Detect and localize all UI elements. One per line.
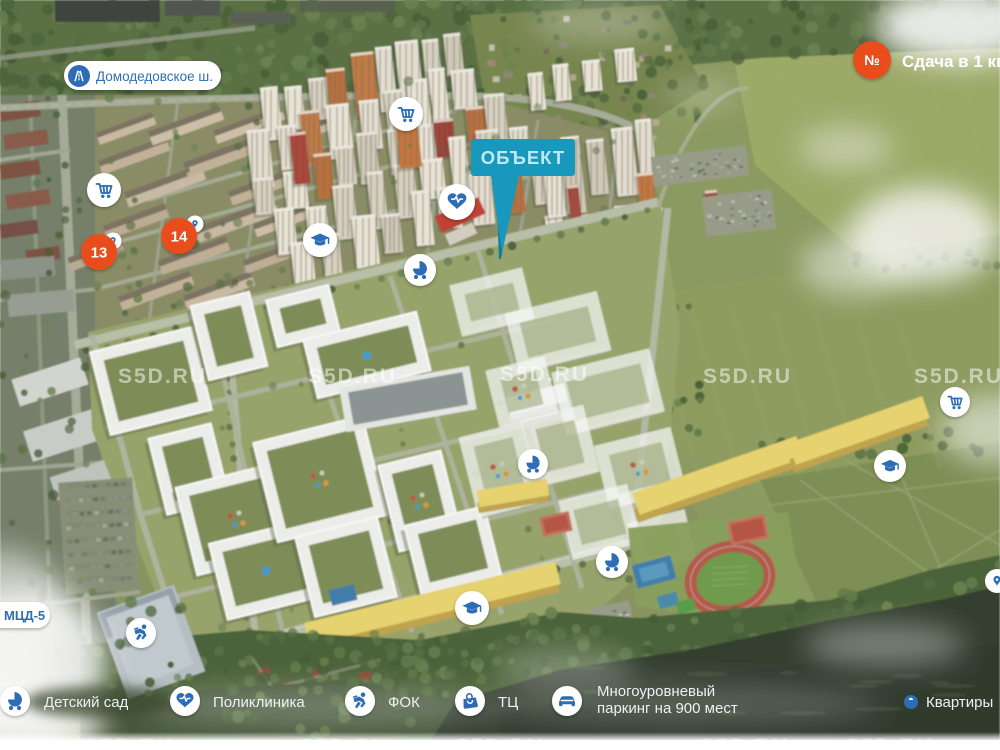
svg-text:S5D.RU: S5D.RU [700, 735, 789, 750]
svg-text:S5D.RU: S5D.RU [300, 735, 389, 750]
svg-text:S5D.RU: S5D.RU [85, 735, 174, 750]
svg-text:S5D.RU: S5D.RU [118, 365, 207, 388]
svg-text:№: № [864, 52, 880, 68]
svg-text:Сдача в 1 кв: Сдача в 1 кв [902, 52, 1000, 71]
svg-text:Детский сад: Детский сад [44, 694, 129, 711]
svg-text:ТЦ: ТЦ [498, 694, 518, 711]
svg-text:S5D.RU: S5D.RU [455, 735, 544, 750]
svg-text:ОБЪЕКТ: ОБЪЕКТ [481, 147, 565, 168]
svg-text:ФОК: ФОК [388, 694, 420, 711]
svg-text:Квартиры: Квартиры [926, 694, 993, 711]
svg-text:14: 14 [171, 228, 188, 245]
svg-text:13: 13 [91, 244, 108, 261]
svg-text:S5D.RU: S5D.RU [500, 363, 589, 386]
svg-text:Домодедовское ш.: Домодедовское ш. [96, 69, 213, 84]
svg-text:Поликлиника: Поликлиника [213, 694, 305, 711]
svg-text:паркинг на 900 мест: паркинг на 900 мест [597, 700, 738, 717]
svg-text:S5D.RU: S5D.RU [914, 365, 1000, 388]
svg-text:S5D.RU: S5D.RU [703, 365, 792, 388]
svg-text:МЦД-5: МЦД-5 [4, 608, 45, 623]
svg-text:S5D.RU: S5D.RU [845, 735, 934, 750]
svg-text:S5D.RU: S5D.RU [308, 365, 397, 388]
svg-text:Многоуровневый: Многоуровневый [597, 683, 715, 700]
